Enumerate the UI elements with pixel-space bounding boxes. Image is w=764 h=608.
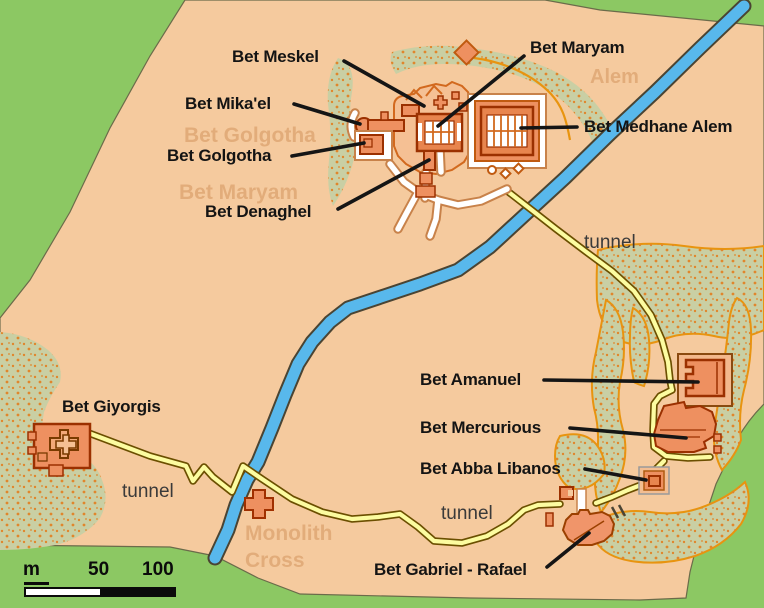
label-bet-denaghel: Bet Denaghel (205, 202, 311, 222)
ghost-label-monolith: Monolith (245, 522, 332, 546)
label-bet-mikael: Bet Mika'el (185, 94, 271, 114)
lalibela-churches-map: Bet Golgotha Bet Maryam Alem Monolith Cr… (0, 0, 764, 608)
ghost-label-cross: Cross (245, 549, 305, 573)
ghost-label-alem: Alem (590, 66, 639, 89)
label-bet-golgotha: Bet Golgotha (167, 146, 271, 166)
label-tunnel-southwest: tunnel (122, 481, 174, 502)
label-bet-gabriel-rafael: Bet Gabriel - Rafael (374, 560, 527, 580)
bet-giyorgis-church (28, 424, 90, 476)
bet-maryam-church (417, 114, 462, 151)
scale-max-label: 100 (142, 559, 174, 581)
label-bet-amanuel: Bet Amanuel (420, 370, 521, 390)
map-canvas (0, 0, 764, 608)
label-bet-medhane-alem: Bet Medhane Alem (584, 117, 732, 137)
leader-bet-medhane-alem (521, 127, 577, 128)
label-bet-meskel: Bet Meskel (232, 47, 319, 67)
label-bet-mercurious: Bet Mercurious (420, 418, 541, 438)
label-bet-abba-libanos: Bet Abba Libanos (420, 459, 561, 479)
scale-unit-label: m (23, 559, 40, 581)
bet-golgotha-church (355, 131, 392, 160)
scale-mid-label: 50 (88, 559, 109, 581)
label-tunnel-south: tunnel (441, 503, 493, 524)
leader-bet-amanuel (544, 380, 698, 382)
label-bet-giyorgis: Bet Giyorgis (62, 397, 161, 417)
ghost-label-golgotha: Bet Golgotha (184, 124, 316, 148)
bet-medhane-alem-church (468, 94, 546, 168)
label-bet-maryam: Bet Maryam (530, 38, 624, 58)
label-tunnel-northeast: tunnel (584, 232, 636, 253)
